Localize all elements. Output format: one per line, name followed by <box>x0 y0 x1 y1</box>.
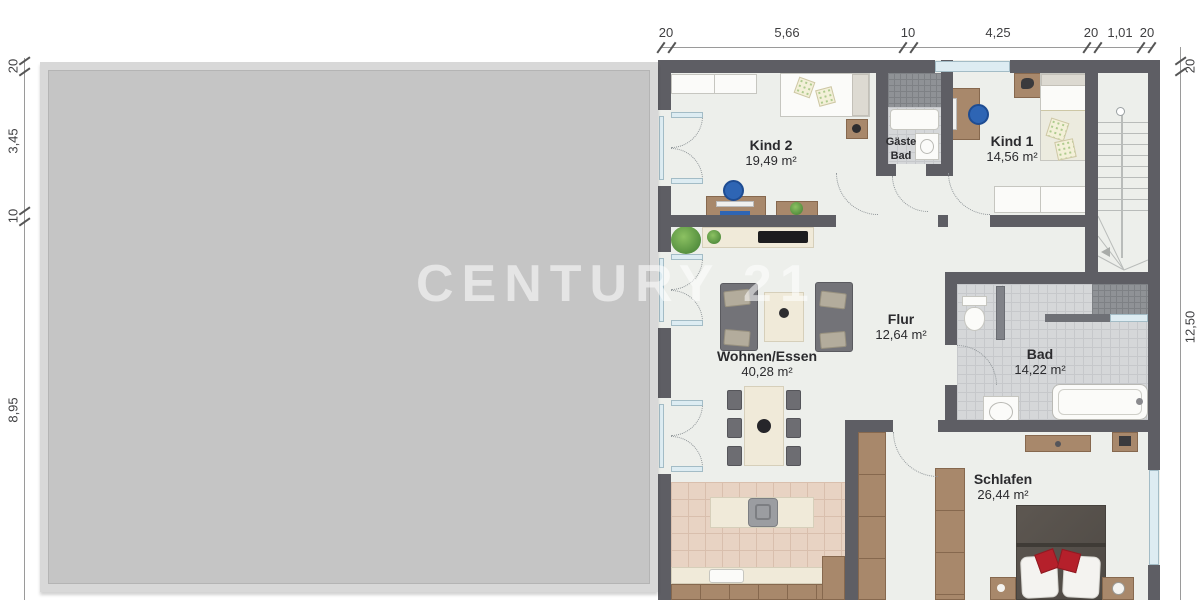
window <box>935 61 1010 72</box>
room-area: 12,64 m² <box>875 327 926 343</box>
room-area: 40,28 m² <box>717 364 817 380</box>
dimension-line <box>660 47 1152 48</box>
desk-chair <box>723 180 744 201</box>
bed-blanket-edge <box>1016 543 1106 547</box>
wall-segment <box>945 284 957 345</box>
wall-segment <box>658 215 836 227</box>
bed-headboard <box>1041 74 1087 86</box>
kitchen-tall-cabinet <box>822 556 845 600</box>
dimension-value: 20 <box>1183 59 1198 73</box>
kitchen-sink <box>709 569 744 583</box>
room-name: Wohnen/Essen <box>717 348 817 364</box>
stair-direction-arrow <box>1101 247 1110 257</box>
sofa-cushion <box>723 329 750 347</box>
watermark: CENTURY 21 <box>416 254 817 314</box>
wall-segment <box>1085 60 1098 284</box>
lamp <box>852 124 861 133</box>
room-name: Flur <box>875 311 926 327</box>
room-area: 19,49 m² <box>745 153 796 169</box>
kitchen-counter <box>671 567 845 584</box>
shower-tray <box>890 109 939 130</box>
room-name: Kind 2 <box>745 137 796 153</box>
fruit-bowl <box>757 419 771 433</box>
nightstand-decor <box>997 584 1005 592</box>
monitor <box>716 201 754 207</box>
dimension-value: 1,01 <box>1107 25 1132 40</box>
dimension-value: 20 <box>1084 25 1098 40</box>
wall-segment <box>658 474 671 600</box>
wall-segment <box>990 215 1098 227</box>
room-name: Bad <box>886 150 917 164</box>
room-label-flur: Flur 12,64 m² <box>875 311 926 343</box>
shelf-item <box>1021 78 1034 89</box>
dimension-value: 10 <box>6 209 21 223</box>
wall-segment <box>845 432 858 600</box>
wardrobe-tall-mid <box>935 468 965 600</box>
stair-treads <box>1098 112 1148 212</box>
room-label-wohnen-essen: Wohnen/Essen 40,28 m² <box>717 348 817 380</box>
washbasin-bowl <box>989 402 1013 422</box>
stool-cushion <box>1119 436 1131 446</box>
door-leaf <box>671 112 703 118</box>
room-label-schlafen: Schlafen 26,44 m² <box>974 471 1032 503</box>
french-door-sill <box>659 116 664 180</box>
wardrobe <box>994 186 1086 213</box>
room-area: 14,22 m² <box>1014 362 1065 378</box>
dining-chair <box>727 390 742 410</box>
dining-chair <box>786 446 801 466</box>
room-label-kind1: Kind 1 14,56 m² <box>986 133 1037 165</box>
wall-segment <box>658 60 935 73</box>
cooktop-ring <box>755 504 771 520</box>
dimension-line <box>1180 47 1181 600</box>
bathtub-inner <box>1058 389 1142 415</box>
bathtub-faucet <box>1136 398 1143 405</box>
washbasin-bowl <box>920 139 934 154</box>
wardrobe <box>671 74 757 94</box>
wall-segment <box>945 272 1160 284</box>
wall-segment <box>945 385 957 420</box>
dresser-knob <box>1055 441 1061 447</box>
wall-segment <box>938 215 948 227</box>
wall-segment <box>845 420 893 432</box>
pillow <box>1054 138 1077 161</box>
plant-large <box>671 226 701 254</box>
toilet-tank <box>962 296 987 306</box>
wall-segment <box>941 60 953 176</box>
dining-chair <box>786 390 801 410</box>
stair-winders <box>1098 212 1148 272</box>
dimension-value: 20 <box>6 59 21 73</box>
dimension-value: 3,45 <box>6 128 21 153</box>
room-name: Schlafen <box>974 471 1032 487</box>
plant <box>790 202 803 215</box>
room-name: Kind 1 <box>986 133 1037 149</box>
dimension-value: 20 <box>659 25 673 40</box>
door-leaf <box>671 320 703 326</box>
room-label-bad: Bad 14,22 m² <box>1014 346 1065 378</box>
kitchen-cabinets <box>671 584 845 600</box>
bed-headboard <box>852 74 869 116</box>
dimension-value: 5,66 <box>774 25 799 40</box>
room-name: Gäste <box>886 136 917 150</box>
plant-small <box>707 230 721 244</box>
bathroom-shower-tiles <box>1092 284 1148 315</box>
door-leaf <box>671 466 703 472</box>
room-area: 14,56 m² <box>986 149 1037 165</box>
room-label-gaeste-bad: Gäste Bad <box>886 136 917 164</box>
wardrobe-tall-left <box>858 432 886 600</box>
dimension-value: 20 <box>1140 25 1154 40</box>
radiator <box>996 286 1005 340</box>
door-leaf <box>671 178 703 184</box>
covered-image-area <box>40 62 658 592</box>
desk-chair <box>968 104 989 125</box>
dining-chair <box>727 446 742 466</box>
sofa-cushion <box>819 290 847 309</box>
wall-segment <box>1148 565 1160 600</box>
dimension-line <box>24 58 25 600</box>
dining-chair <box>786 418 801 438</box>
wall-segment <box>658 328 671 398</box>
room-area: 26,44 m² <box>974 487 1032 503</box>
guest-bath-shower-tiles <box>888 73 941 107</box>
dimension-value: 10 <box>901 25 915 40</box>
dining-chair <box>727 418 742 438</box>
french-door-sill <box>659 404 664 468</box>
shower-glass <box>1110 314 1148 322</box>
toilet-bowl <box>964 307 985 331</box>
door-leaf <box>671 400 703 406</box>
shower-partition <box>1045 314 1110 322</box>
wall-segment <box>658 73 671 110</box>
window <box>1149 470 1159 565</box>
stair-walkline-start <box>1116 107 1125 116</box>
stair-walkline <box>1121 112 1123 258</box>
dimension-value: 4,25 <box>985 25 1010 40</box>
wall-segment <box>938 420 1160 432</box>
room-label-kind2: Kind 2 19,49 m² <box>745 137 796 169</box>
dimension-value: 8,95 <box>6 397 21 422</box>
wall-segment <box>876 164 896 176</box>
room-name: Bad <box>1014 346 1065 362</box>
dimension-value: 12,50 <box>1183 311 1198 344</box>
nightstand-lamp <box>1112 582 1125 595</box>
sofa-cushion <box>819 331 846 349</box>
tv <box>758 231 808 243</box>
